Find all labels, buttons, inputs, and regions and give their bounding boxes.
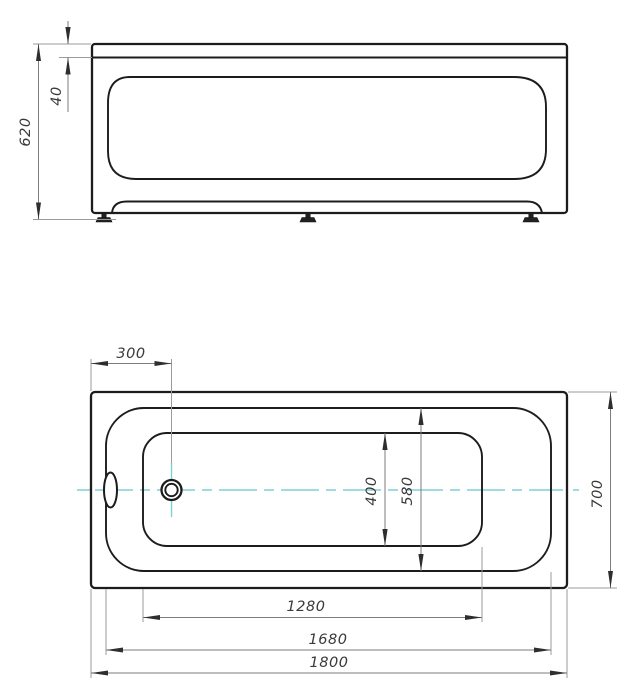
dim-label-40: 40: [49, 86, 65, 105]
arrowhead-right: [155, 361, 172, 366]
dim-rim-height: 40: [49, 21, 92, 112]
dim-label-400: 400: [364, 476, 380, 505]
arrowhead-up: [608, 392, 613, 409]
dim-label-1680: 1680: [309, 632, 348, 648]
arrowhead-up: [36, 44, 41, 61]
arrowhead-left: [106, 648, 123, 653]
arrowhead-right: [550, 671, 567, 676]
dim-label-580: 580: [400, 476, 416, 505]
arrowhead-down: [36, 203, 41, 220]
dim-label-300: 300: [116, 346, 145, 362]
dim-drain-offset: 300: [91, 346, 172, 391]
bathtub-technical-drawing: 620 40: [0, 0, 635, 700]
arrowhead-left: [91, 671, 108, 676]
dim-label-700: 700: [590, 479, 606, 508]
arrowhead-down: [65, 27, 70, 44]
arrowhead-right: [534, 648, 551, 653]
arrowhead-left: [143, 615, 160, 620]
foot-right: [523, 213, 539, 222]
foot-base: [300, 218, 316, 223]
foot-left: [96, 213, 112, 222]
foot-center: [300, 213, 316, 222]
dim-label-620: 620: [18, 117, 34, 146]
front-outline: [92, 44, 567, 213]
overflow-hole: [104, 473, 117, 508]
arrowhead-right: [465, 615, 482, 620]
dim-label-1280: 1280: [287, 599, 326, 615]
drain-inner-ring: [165, 484, 177, 496]
plan-view: 300 700 580 400: [77, 346, 617, 678]
arrowhead-down: [608, 571, 613, 588]
dim-label-1800: 1800: [310, 655, 349, 671]
drawing-canvas: 620 40: [0, 0, 635, 700]
arrowhead-left: [91, 361, 108, 366]
arrowhead-up: [65, 58, 70, 75]
foot-base: [523, 218, 539, 223]
front-view: 620 40: [18, 21, 567, 222]
